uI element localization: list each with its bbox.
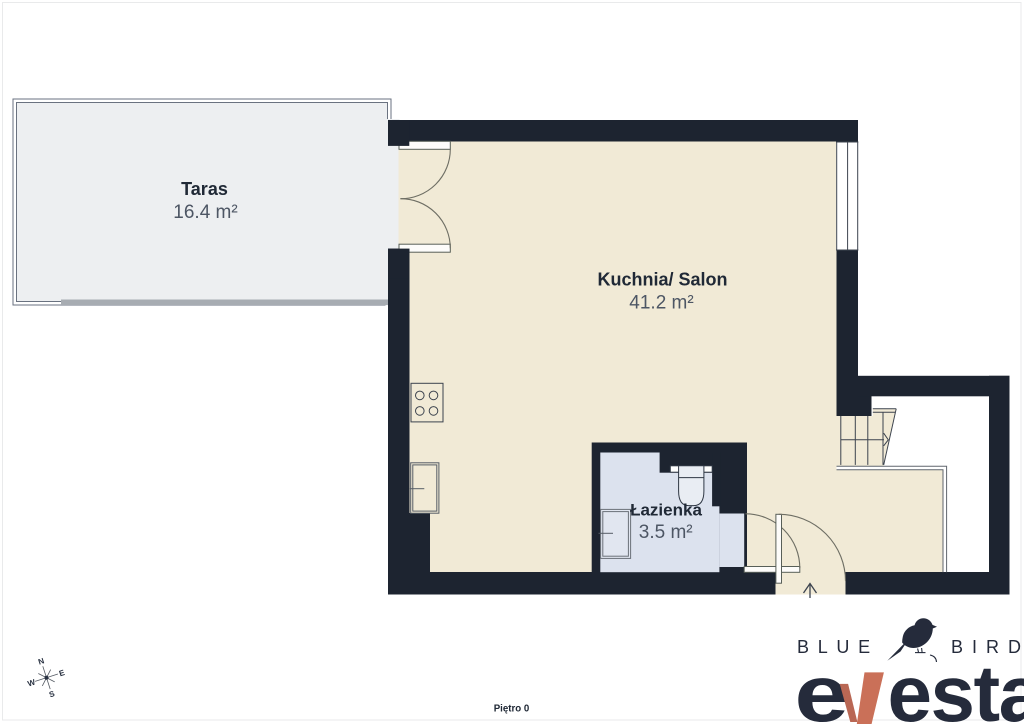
svg-text:Kuchnia/ Salon: Kuchnia/ Salon xyxy=(597,270,727,290)
svg-text:41.2 m²: 41.2 m² xyxy=(629,292,693,313)
svg-text:esta: esta xyxy=(888,649,1024,724)
svg-text:S: S xyxy=(48,689,56,699)
svg-text:3.5 m²: 3.5 m² xyxy=(639,522,693,543)
svg-text:Piętro 0: Piętro 0 xyxy=(494,704,530,715)
svg-text:N: N xyxy=(37,656,45,666)
svg-text:Taras: Taras xyxy=(181,179,228,199)
svg-text:16.4 m²: 16.4 m² xyxy=(173,202,237,223)
svg-text:Łazienka: Łazienka xyxy=(630,501,702,520)
svg-text:E: E xyxy=(58,668,66,678)
svg-text:W: W xyxy=(26,678,36,689)
